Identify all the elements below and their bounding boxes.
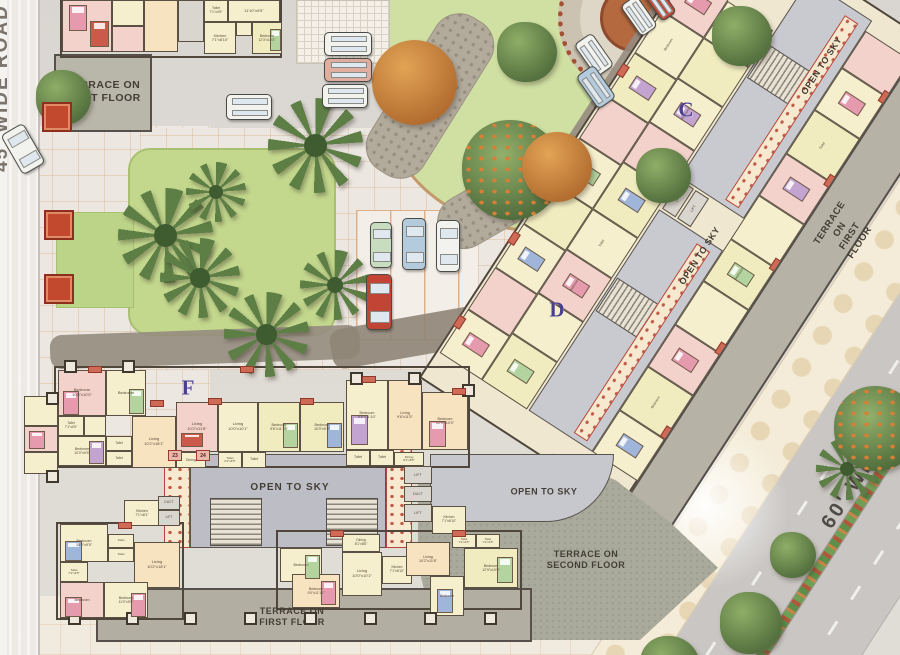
balcony (408, 372, 421, 385)
tree-icon (522, 132, 592, 202)
bed-icon (462, 332, 490, 358)
bed-icon (89, 441, 104, 464)
room: Toilet (106, 436, 132, 451)
bed-icon (684, 0, 712, 15)
room (236, 22, 252, 36)
room-label: Toilet (378, 456, 386, 460)
room (62, 0, 112, 52)
room: Bedroom 9'0"x11'10" (292, 574, 340, 608)
wing-letter-d: D (549, 298, 564, 323)
room: Living 9'6"x11'5" (388, 380, 422, 450)
room: Toilet 7'1"x4'5" (476, 534, 500, 548)
room-label: Bedroom 12'9"x10'0" (482, 564, 500, 572)
tree-icon (372, 40, 457, 125)
room: Bedroom 12'9"x10'0" (464, 548, 518, 588)
room (112, 0, 144, 26)
room-label: Bedroom (118, 391, 134, 396)
car-icon (324, 58, 372, 82)
bed-icon (671, 347, 699, 373)
bed-icon (782, 176, 810, 202)
door-accent (118, 522, 132, 529)
car-icon (436, 220, 460, 272)
room-label: DUCT (164, 501, 173, 505)
room: Bedroom 10'0"x9'5" (58, 436, 106, 466)
room: Dining 8'1"x8'6" (342, 534, 380, 552)
bed-icon (181, 433, 203, 447)
label-open-to-sky: OPEN TO SKY (250, 482, 329, 495)
room-label: Bedroom 9'6"x11'10" (358, 411, 376, 420)
room: Bedroom (430, 576, 464, 616)
room: Bedroom 9'6"x11'10" (346, 380, 388, 450)
car-icon (322, 84, 368, 108)
car-icon (226, 94, 272, 120)
room-label: Toilet (115, 442, 122, 446)
room-label: Toilet (598, 239, 606, 248)
room: Bedroom 12'3"x10'2" (252, 22, 282, 54)
room-label: Toilet 7'1"x4'5" (458, 538, 469, 545)
door-accent (208, 398, 222, 405)
tree-icon (712, 6, 772, 66)
room-label: Bedroom (294, 563, 309, 567)
balcony (46, 470, 59, 483)
palm-tree-icon (224, 292, 309, 377)
room: 11'10"x9'5" (228, 0, 280, 22)
room-label: Living 10'2"x18'1" (147, 560, 167, 569)
door-accent (300, 398, 314, 405)
room: Dining 8'1"x8'6" (394, 452, 424, 466)
room-label: Kitchen 7'1"x8'10" (390, 566, 404, 574)
planter-box (44, 274, 74, 304)
planter-box (42, 102, 72, 132)
label-terrace-second-floor: TERRACE ON SECOND FLOOR (547, 549, 626, 572)
room-label: Bedroom 9'6"x11'10" (270, 423, 288, 432)
bed-icon (838, 91, 866, 117)
room: Toilet (370, 450, 394, 466)
palm-tree-icon (300, 250, 370, 320)
car-icon (324, 32, 372, 56)
room-label: Bedroom (664, 38, 675, 52)
room-label: Dining 8'1"x8'6" (355, 539, 368, 547)
room: Toilet (108, 548, 134, 562)
room (144, 0, 178, 52)
room-label: Bedroom (75, 598, 90, 602)
room-label: Living 10'0"x10'1" (228, 422, 248, 431)
room-label: Bedroom 12'9"x10'0" (436, 417, 454, 426)
staircase (210, 498, 262, 546)
room-label: Toilet 7'1"x4'5" (65, 422, 77, 429)
room-label: Bedroom 11'0"x9'5" (118, 596, 133, 604)
balcony (64, 360, 77, 373)
car-icon (366, 274, 392, 330)
stair-number: 23 (168, 450, 182, 461)
bed-icon (517, 246, 545, 272)
room-label: 11'10"x9'5" (244, 9, 263, 14)
balcony (244, 612, 257, 625)
room-label: Toilet (250, 458, 258, 462)
room: DUCT (158, 496, 180, 510)
room: Toilet 7'1"x4'5" (204, 0, 228, 22)
room: DUCT (404, 486, 432, 502)
palm-tree-icon (268, 98, 363, 193)
bed-icon (437, 589, 453, 613)
room-label: Kitchen 7'1"x8'10" (442, 516, 456, 524)
room: Bedroom 12'9"x10'0" (422, 392, 468, 450)
room: Bedroom 10'0"x9'5" (300, 402, 344, 452)
label-open-to-sky: OPEN TO SKY (511, 486, 578, 497)
room: Living 10'2"x11'8" (406, 542, 450, 576)
room-label: DUCT (413, 492, 423, 496)
room-label: Bedroom (651, 396, 662, 410)
room: Toilet 7'1"x4'5" (58, 416, 84, 436)
room: Toilet (106, 451, 132, 466)
room: Toilet (108, 534, 134, 548)
palm-tree-icon (160, 238, 240, 318)
room: Living 10'0"x10'1" (342, 552, 382, 596)
room-label: LIFT (414, 473, 421, 477)
room: Toilet 7'1"x4'5" (60, 562, 88, 582)
room-label: Toilet 2'1"x4'5" (224, 457, 235, 464)
room-label: LIFT (689, 204, 696, 212)
room-label: Living 10'2"x18'1" (144, 437, 164, 446)
room (24, 426, 58, 452)
room-label: Bedroom 10'0"x9'5" (74, 447, 90, 455)
room-label: Living 10'2"x11'8" (187, 422, 206, 431)
planter-box (44, 210, 74, 240)
room-label: Toilet (115, 457, 122, 461)
room-label: Bedroom 9'0"x11'10" (308, 587, 325, 595)
balcony (364, 612, 377, 625)
bed-icon (29, 431, 45, 449)
bed-icon (90, 21, 109, 47)
balcony (484, 612, 497, 625)
room-label: Bedroom 10'0"x9'5" (314, 423, 330, 432)
wing-letter-f: F (182, 376, 195, 401)
room: Toilet 2'1"x4'5" (218, 452, 242, 468)
room: Kitchen 7'1"x8'10" (204, 22, 236, 54)
balcony (122, 360, 135, 373)
room (84, 416, 106, 436)
room-label: Toilet (354, 456, 362, 460)
room-label: Toilet 7'1"x4'5" (210, 7, 223, 15)
room: Bedroom (106, 370, 146, 416)
room: LIFT (404, 466, 432, 484)
room-label: Kitchen 7'1"x8'1" (135, 509, 148, 517)
room-label: Dining 8'1"x8'6" (403, 456, 414, 463)
bed-icon (628, 75, 656, 101)
room: Toilet (242, 452, 266, 468)
room-label: Kitchen 7'1"x8'10" (212, 34, 229, 43)
door-accent (452, 530, 466, 537)
stair-number: 24 (196, 450, 210, 461)
tree-icon (497, 22, 557, 82)
room-label: Bedroom 10'5"x10'0" (72, 388, 92, 397)
room-label: Dining (186, 458, 196, 462)
bed-icon (616, 433, 644, 459)
room-label: Living 9'6"x11'5" (397, 411, 413, 420)
room-label: Bedroom 12'3"x10'2" (258, 34, 275, 42)
room: LIFT (404, 504, 432, 522)
room: Living 10'2"x11'8" (176, 402, 218, 452)
car-icon (370, 222, 392, 268)
tree-icon (720, 592, 782, 654)
tree-icon (770, 532, 816, 578)
room: Bedroom 10'5"x10'0" (58, 370, 106, 416)
tree-icon (636, 148, 691, 203)
room: Bedroom 9'6"x11'10" (258, 402, 300, 452)
room (178, 0, 204, 42)
site-plan: BedroomBedroomBedroomToiletBedroomBedroo… (0, 0, 900, 655)
room: Bedroom (60, 582, 104, 618)
door-accent (330, 530, 344, 537)
room-label: Toilet (819, 142, 827, 151)
room: Toilet (346, 450, 370, 466)
wing-letter-c: C (678, 98, 693, 123)
room (112, 26, 144, 52)
room-label: LIFT (414, 511, 421, 515)
room-label: LIFT (166, 516, 173, 520)
balcony (46, 392, 59, 405)
bed-icon (506, 359, 534, 385)
room-label: Bedroom 10'0"x9'5" (76, 539, 92, 548)
balcony (184, 612, 197, 625)
room-label: Bedroom (440, 594, 455, 598)
car-icon (402, 218, 426, 270)
bed-icon (351, 415, 368, 445)
room-label: Toilet (117, 539, 124, 542)
balcony (304, 612, 317, 625)
room-label: Living 10'0"x10'1" (352, 569, 372, 578)
room-label: Living 10'2"x11'8" (419, 555, 437, 564)
bed-icon (69, 5, 87, 31)
balcony (424, 612, 437, 625)
door-accent (88, 366, 102, 373)
palm-tree-icon (186, 162, 246, 222)
room: LIFT (158, 510, 180, 526)
room: Bedroom 10'0"x9'5" (60, 524, 108, 562)
room: Living 10'0"x10'1" (218, 402, 258, 452)
door-accent (240, 366, 254, 373)
room-label: Toilet 7'1"x4'5" (68, 569, 79, 576)
door-accent (150, 400, 164, 407)
door-accent (452, 388, 466, 395)
room-label: Toilet 7'1"x4'5" (482, 538, 493, 545)
door-accent (362, 376, 376, 383)
room-label: Toilet (117, 553, 124, 556)
